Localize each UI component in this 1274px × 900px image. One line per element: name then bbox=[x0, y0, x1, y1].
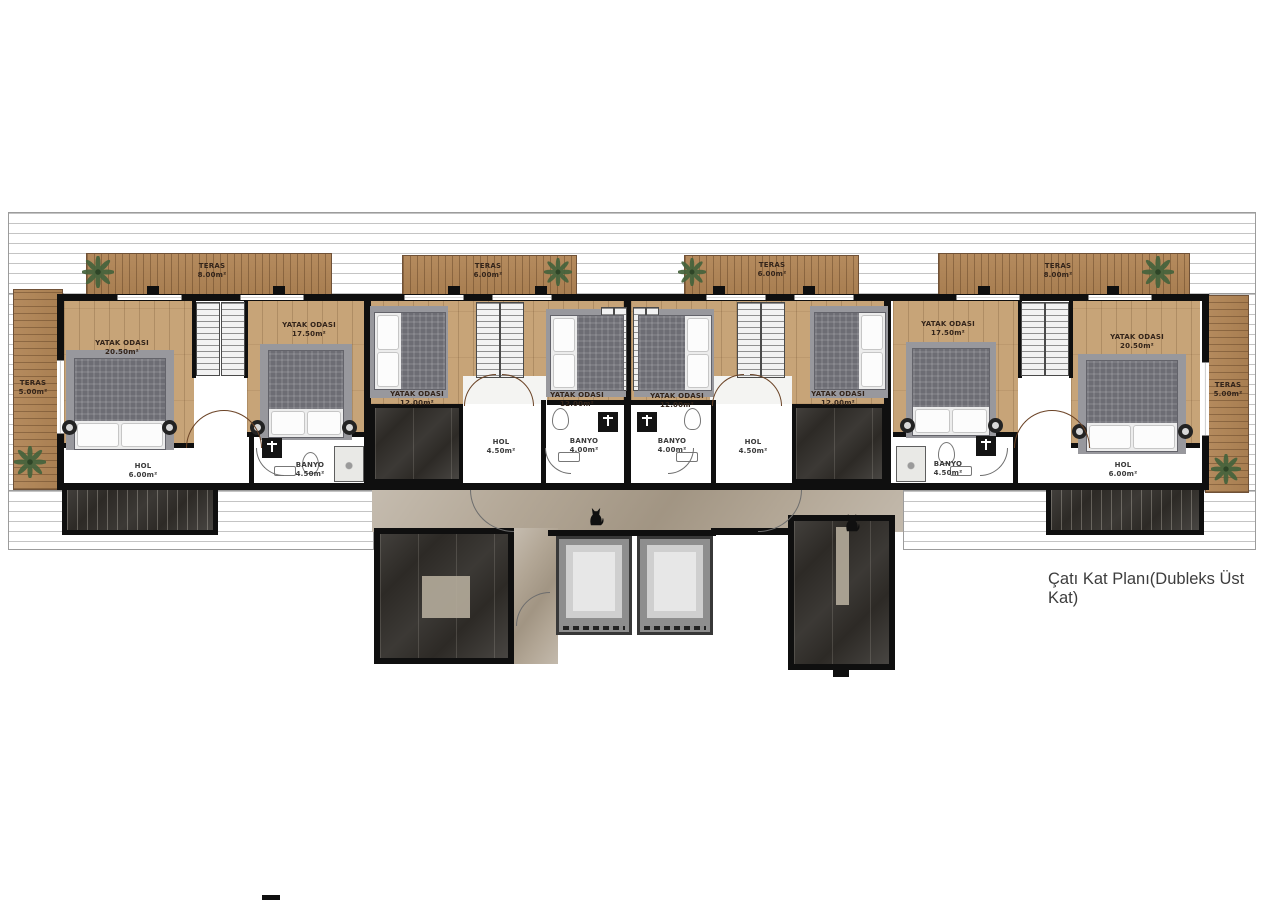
plant-icon bbox=[678, 258, 706, 290]
bed-d1 bbox=[912, 348, 990, 436]
label-terrace-left: TERAS5.00m² bbox=[19, 379, 48, 397]
pillow bbox=[307, 411, 341, 435]
room-name: YATAK ODASI bbox=[550, 391, 604, 400]
core-stairwell-right bbox=[788, 515, 895, 670]
elevator-car bbox=[566, 545, 622, 618]
wardrobe bbox=[500, 302, 524, 378]
cat-icon bbox=[588, 506, 604, 530]
plant-icon bbox=[1211, 454, 1241, 488]
room-name: HOL bbox=[493, 438, 510, 447]
room-area: 12.00m² bbox=[821, 399, 855, 408]
elevator-door-sill bbox=[644, 626, 706, 630]
bed-pillows bbox=[551, 316, 577, 390]
label-bedroom-d2: YATAK ODASI20.50m² bbox=[1110, 333, 1164, 351]
room-name: BANYO bbox=[934, 460, 962, 469]
label-terrace-c: TERAS6.00m² bbox=[758, 261, 787, 279]
stair-treads bbox=[67, 488, 213, 530]
stairs-unit-d bbox=[1046, 483, 1204, 535]
plant-icon bbox=[544, 258, 572, 290]
room-area: 6.00m² bbox=[1109, 470, 1138, 479]
room-area: 6.00m² bbox=[474, 271, 503, 280]
label-banyo-b: BANYO4.00m² bbox=[570, 437, 599, 455]
plant-icon bbox=[1142, 256, 1174, 292]
room-area: 20.50m² bbox=[105, 348, 139, 357]
bed-d2 bbox=[1086, 360, 1178, 452]
pillow bbox=[1133, 425, 1175, 449]
label-terrace-b: TERAS6.00m² bbox=[474, 262, 503, 280]
lamp-icon bbox=[988, 418, 1003, 433]
pillow bbox=[915, 409, 950, 433]
pillow bbox=[377, 315, 399, 350]
bed-pillows bbox=[913, 407, 989, 435]
pillow bbox=[1089, 425, 1131, 449]
room-name: HOL bbox=[1115, 461, 1132, 470]
wardrobe bbox=[1045, 302, 1069, 376]
stair-treads bbox=[1051, 488, 1199, 530]
terrace-door-window bbox=[794, 295, 854, 300]
room-area: 6.00m² bbox=[758, 270, 787, 279]
pillow bbox=[687, 354, 709, 388]
shower-unit-fixture bbox=[637, 412, 657, 432]
room-name: TERAS bbox=[759, 261, 785, 270]
plan-caption: Çatı Kat Planı(Dubleks Üst Kat) bbox=[1048, 570, 1274, 608]
room-area: 4.00m² bbox=[658, 446, 687, 455]
room-area: 17.50m² bbox=[931, 329, 965, 338]
wall bbox=[548, 530, 716, 536]
stairs-unit-b bbox=[371, 404, 463, 483]
label-bedroom-b1: YATAK ODASI12.00m² bbox=[390, 390, 444, 408]
wardrobe bbox=[221, 302, 245, 376]
pillow bbox=[952, 409, 987, 433]
elevator-car bbox=[647, 545, 703, 618]
threshold bbox=[147, 286, 159, 295]
room-name: YATAK ODASI bbox=[650, 392, 704, 401]
lamp-icon bbox=[62, 420, 77, 435]
stairs-unit-c bbox=[792, 404, 886, 483]
floor-plan-canvas: TERAS8.00m² TERAS6.00m² TERAS6.00m² TERA… bbox=[0, 0, 1274, 900]
wall bbox=[711, 400, 716, 483]
room-area: 12.00m² bbox=[560, 400, 594, 409]
lamp-icon bbox=[1178, 424, 1193, 439]
pillow bbox=[687, 318, 709, 352]
label-bedroom-b2: YATAK ODASI12.00m² bbox=[550, 391, 604, 409]
threshold bbox=[833, 668, 849, 677]
label-hol-c: HOL4.50m² bbox=[739, 438, 768, 456]
side-terrace-window bbox=[1202, 362, 1209, 436]
bed-blanket bbox=[815, 313, 859, 389]
terrace-door-window bbox=[240, 295, 304, 300]
threshold bbox=[713, 286, 725, 295]
terrace-door-window bbox=[706, 295, 766, 300]
room-name: TERAS bbox=[1045, 262, 1071, 271]
elevator-car-floor bbox=[654, 552, 696, 611]
shower-unit-fixture bbox=[598, 412, 618, 432]
room-name: TERAS bbox=[20, 379, 46, 388]
lamp-icon bbox=[900, 418, 915, 433]
plant-icon bbox=[14, 446, 46, 482]
room-area: 4.00m² bbox=[570, 446, 599, 455]
plant-icon bbox=[82, 256, 114, 292]
room-name: YATAK ODASI bbox=[390, 390, 444, 399]
room-name: YATAK ODASI bbox=[811, 390, 865, 399]
room-name: HOL bbox=[745, 438, 762, 447]
bed-pillows bbox=[859, 313, 885, 389]
label-bedroom-c2: YATAK ODASI12.00m² bbox=[811, 390, 865, 408]
room-area: 4.50m² bbox=[487, 447, 516, 456]
label-bedroom-a2: YATAK ODASI17.50m² bbox=[282, 321, 336, 339]
label-bedroom-d1: YATAK ODASI17.50m² bbox=[921, 320, 975, 338]
elevator-1 bbox=[556, 536, 632, 635]
room-name: YATAK ODASI bbox=[282, 321, 336, 330]
elevator-door-sill bbox=[563, 626, 625, 630]
room-area: 17.50m² bbox=[292, 330, 326, 339]
label-hol-b: HOL4.50m² bbox=[487, 438, 516, 456]
bed-c2 bbox=[814, 312, 886, 390]
label-terrace-a: TERAS8.00m² bbox=[198, 262, 227, 280]
pillow bbox=[553, 318, 575, 352]
label-hol-d: HOL6.00m² bbox=[1109, 461, 1138, 479]
room-area: 6.00m² bbox=[129, 471, 158, 480]
page-bottom-mark bbox=[262, 895, 280, 900]
label-bedroom-a1: YATAK ODASI20.50m² bbox=[95, 339, 149, 357]
threshold bbox=[803, 286, 815, 295]
elevator-car-floor bbox=[573, 552, 615, 611]
wall bbox=[711, 528, 791, 535]
wardrobe bbox=[1021, 302, 1045, 376]
pillow bbox=[861, 352, 883, 387]
bed-pillows bbox=[269, 409, 343, 437]
core-stairwell-left bbox=[374, 528, 514, 664]
terrace-door-window bbox=[1088, 295, 1152, 300]
pillow bbox=[377, 352, 399, 387]
label-hol-a: HOL6.00m² bbox=[129, 462, 158, 480]
stairs-unit-a bbox=[62, 483, 218, 535]
bed-blanket bbox=[401, 313, 445, 389]
pillow bbox=[553, 354, 575, 388]
room-name: YATAK ODASI bbox=[95, 339, 149, 348]
label-banyo-c: BANYO4.00m² bbox=[658, 437, 687, 455]
label-banyo-a: BANYO4.50m² bbox=[296, 461, 325, 479]
room-name: YATAK ODASI bbox=[921, 320, 975, 329]
elevator-2 bbox=[637, 536, 713, 635]
room-area: 8.00m² bbox=[198, 271, 227, 280]
bed-blanket bbox=[269, 351, 343, 409]
room-name: YATAK ODASI bbox=[1110, 333, 1164, 342]
room-name: BANYO bbox=[570, 437, 598, 446]
room-name: TERAS bbox=[1215, 381, 1241, 390]
label-banyo-d: BANYO4.50m² bbox=[934, 460, 963, 478]
bed-blanket bbox=[639, 316, 685, 390]
label-terrace-d: TERAS8.00m² bbox=[1044, 262, 1073, 280]
bed-blanket bbox=[577, 316, 623, 390]
room-area: 5.00m² bbox=[19, 388, 48, 397]
bed-pillows bbox=[75, 421, 165, 449]
toilet bbox=[552, 408, 569, 430]
bed-blanket bbox=[1087, 361, 1177, 423]
label-terrace-right: TERAS5.00m² bbox=[1214, 381, 1243, 399]
lamp-icon bbox=[342, 420, 357, 435]
bed-a2 bbox=[268, 350, 344, 438]
room-area: 12.00m² bbox=[660, 401, 694, 410]
pillow bbox=[121, 423, 163, 447]
terrace-door-window bbox=[117, 295, 182, 300]
terrace-door-window bbox=[492, 295, 552, 300]
terrace-door-window bbox=[404, 295, 464, 300]
room-area: 4.50m² bbox=[296, 470, 325, 479]
room-area: 20.50m² bbox=[1120, 342, 1154, 351]
wall bbox=[1069, 301, 1073, 378]
wall bbox=[541, 400, 546, 483]
bed-b2 bbox=[550, 315, 624, 391]
room-area: 5.00m² bbox=[1214, 390, 1243, 399]
threshold bbox=[273, 286, 285, 295]
room-name: BANYO bbox=[296, 461, 324, 470]
room-name: BANYO bbox=[658, 437, 686, 446]
room-area: 4.50m² bbox=[934, 469, 963, 478]
bed-pillows bbox=[685, 316, 711, 390]
stair-landing bbox=[422, 576, 470, 618]
wardrobe bbox=[196, 302, 220, 376]
bed-blanket bbox=[75, 359, 165, 421]
pillow bbox=[271, 411, 305, 435]
stair-treads bbox=[375, 408, 459, 479]
wardrobe bbox=[476, 302, 500, 378]
room-area: 8.00m² bbox=[1044, 271, 1073, 280]
stair-divider bbox=[836, 527, 849, 605]
bed-pillows bbox=[375, 313, 401, 389]
lamp-icon bbox=[162, 420, 177, 435]
shower bbox=[896, 446, 926, 482]
toilet bbox=[684, 408, 701, 430]
room-name: HOL bbox=[135, 462, 152, 471]
threshold bbox=[448, 286, 460, 295]
shower bbox=[334, 446, 364, 482]
room-area: 12.00m² bbox=[400, 399, 434, 408]
room-area: 4.50m² bbox=[739, 447, 768, 456]
label-bedroom-c1: YATAK ODASI12.00m² bbox=[650, 392, 704, 410]
wall bbox=[57, 483, 1209, 490]
bed-b1 bbox=[374, 312, 446, 390]
bed-c1 bbox=[638, 315, 712, 391]
pillow bbox=[77, 423, 119, 447]
threshold bbox=[1107, 286, 1119, 295]
terrace-door-window bbox=[956, 295, 1020, 300]
pillow bbox=[861, 315, 883, 350]
cat-icon bbox=[844, 512, 860, 536]
bed-a1 bbox=[74, 358, 166, 450]
wardrobe bbox=[761, 302, 785, 378]
bed-pillows bbox=[1087, 423, 1177, 451]
wardrobe bbox=[737, 302, 761, 378]
wall bbox=[57, 294, 1209, 301]
bed-blanket bbox=[913, 349, 989, 407]
stair-treads bbox=[796, 408, 882, 479]
room-name: TERAS bbox=[199, 262, 225, 271]
room-name: TERAS bbox=[475, 262, 501, 271]
threshold bbox=[978, 286, 990, 295]
